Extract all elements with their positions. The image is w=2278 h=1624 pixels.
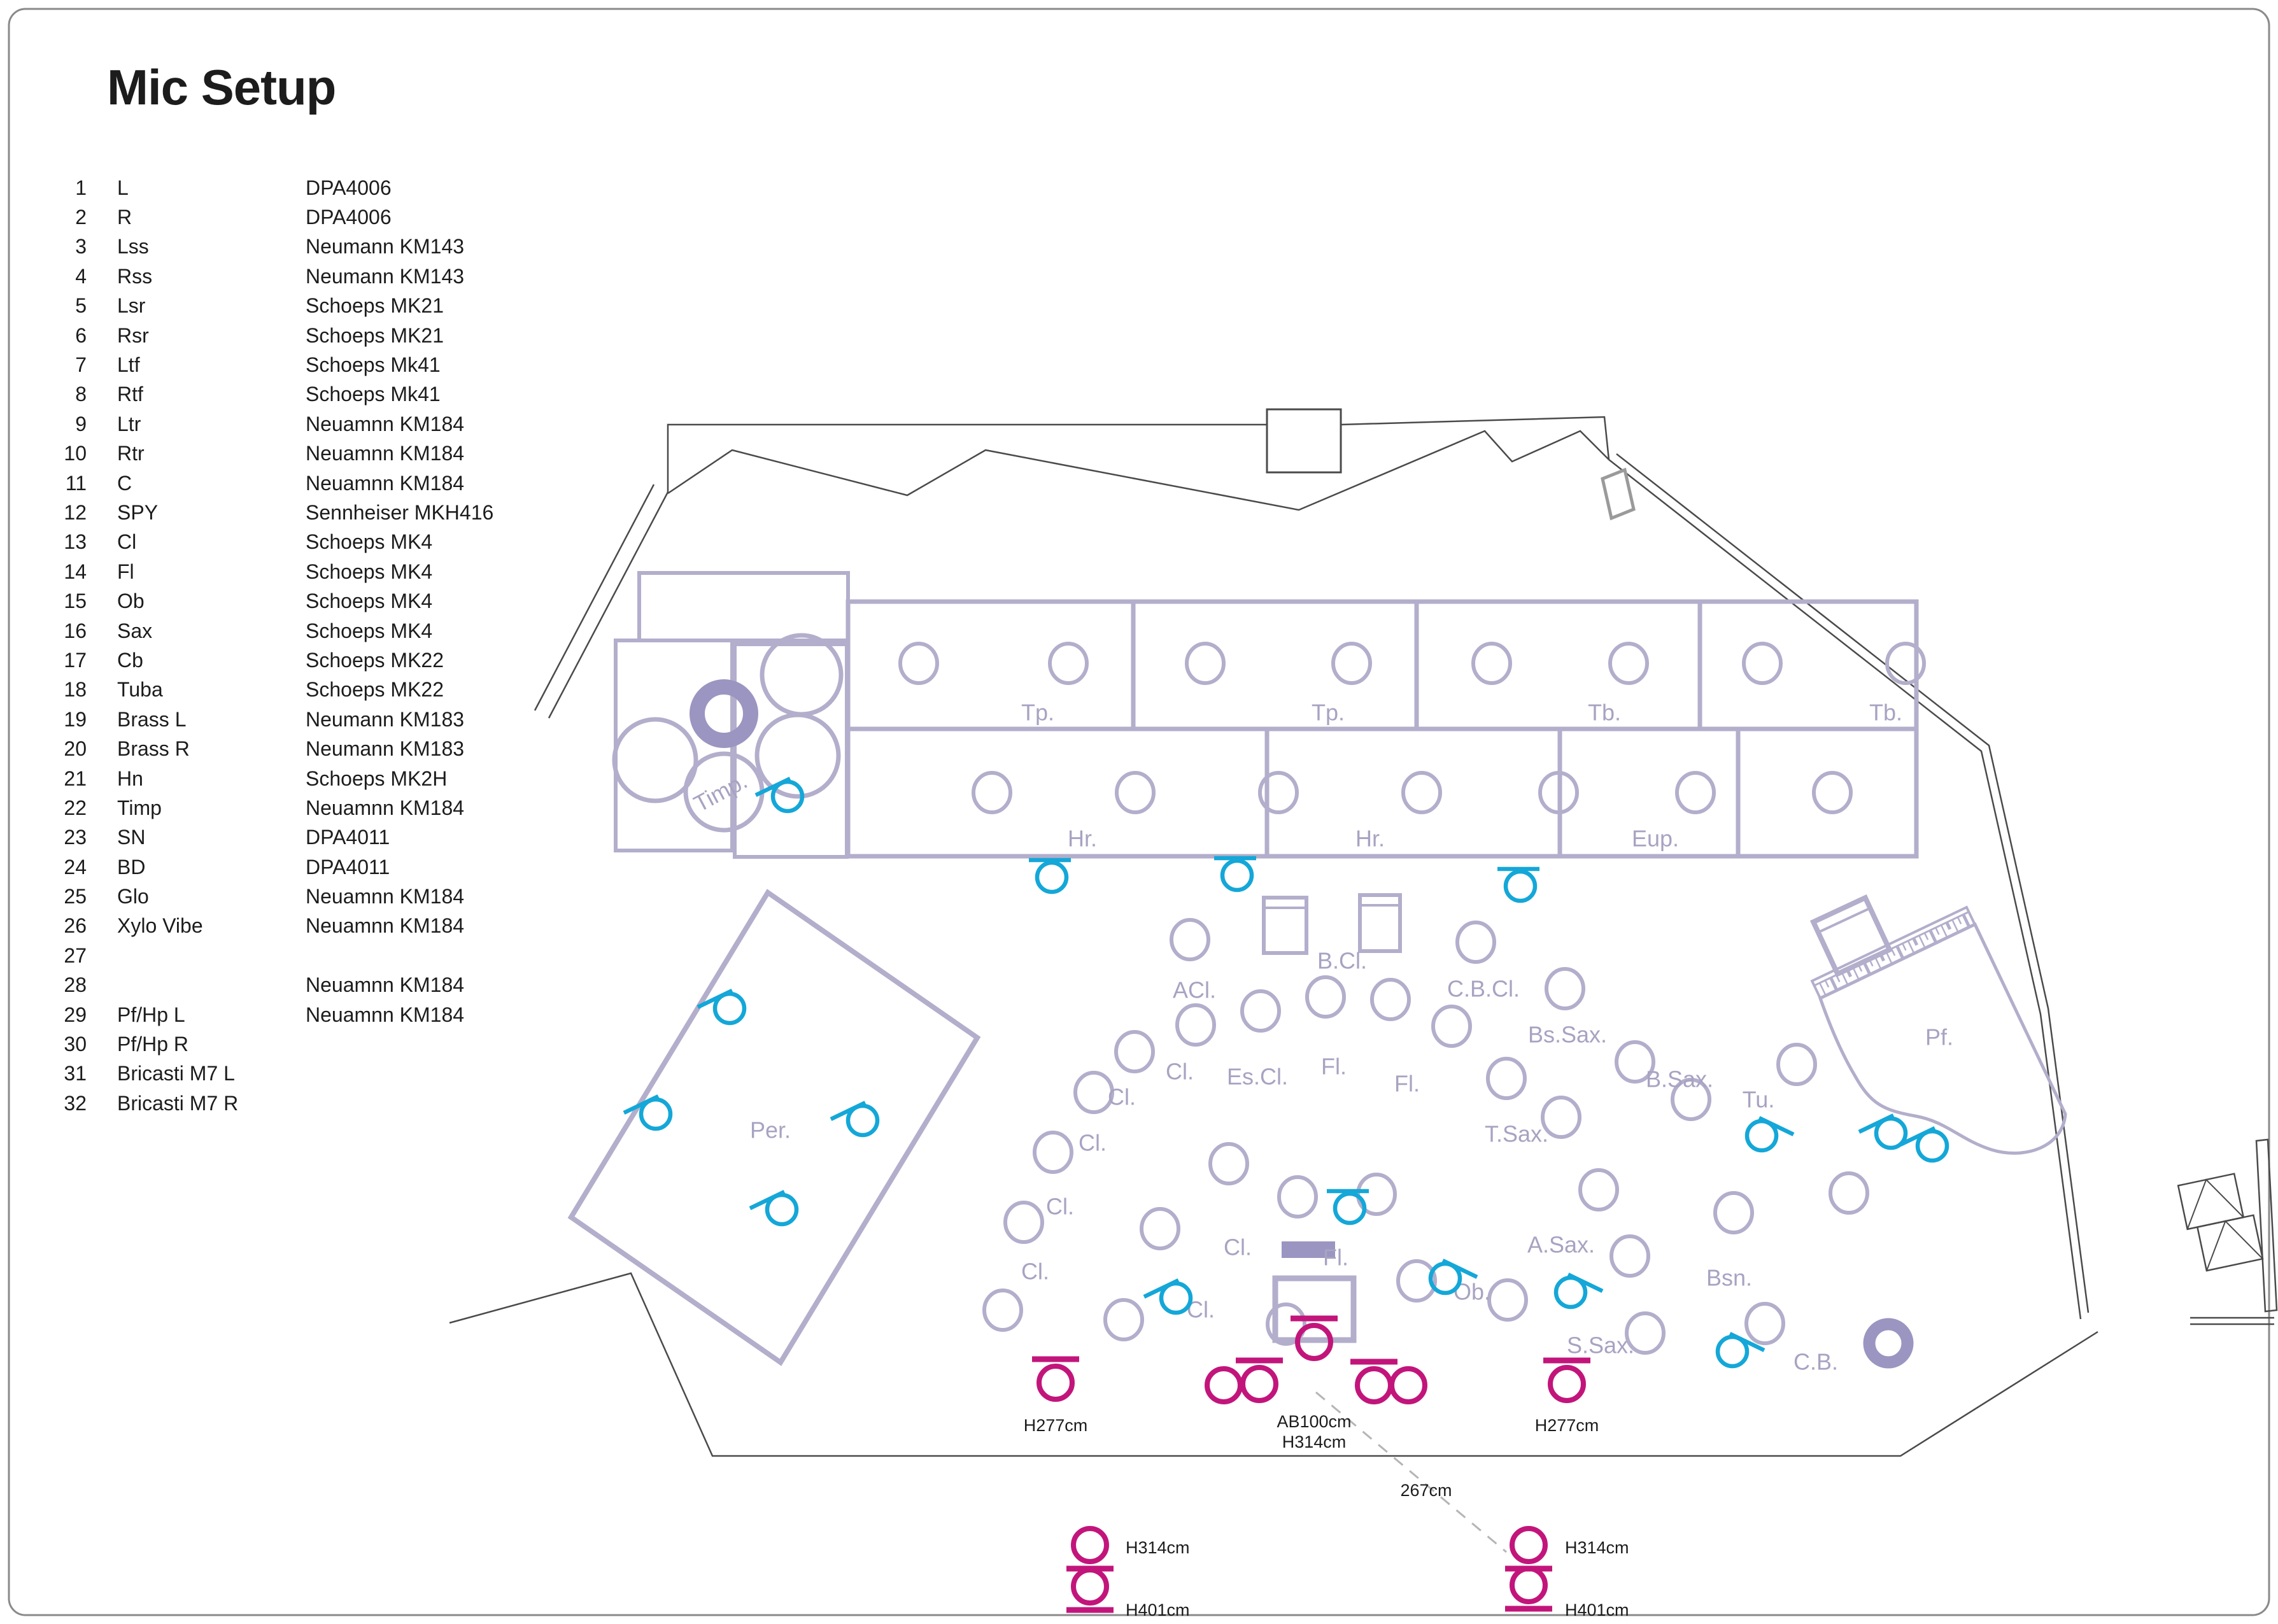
- main-mic-capsule: [1243, 1367, 1276, 1401]
- bcl-stand: [1264, 898, 1306, 953]
- wall-edge-strip: [2256, 1140, 2277, 1311]
- door-booth: [1267, 409, 1341, 472]
- chair: [1814, 773, 1851, 812]
- section-label: Cl.: [1108, 1084, 1136, 1110]
- chair: [1105, 1300, 1142, 1339]
- chair: [973, 773, 1010, 812]
- piano-keyboard: [1812, 907, 1975, 998]
- wall-line: [1617, 454, 2088, 1313]
- main-mic-icon: [1543, 1360, 1590, 1401]
- spot-mic-icon: [831, 1103, 877, 1135]
- main-mic-icon: [1207, 1369, 1240, 1402]
- section-label: Cl.: [1021, 1259, 1049, 1285]
- timpani-drum: [762, 635, 841, 714]
- chair: [1473, 644, 1510, 683]
- timpani-box: [735, 644, 847, 857]
- main-mic-icon: [1505, 1529, 1552, 1569]
- measure-label: H401cm: [1565, 1600, 1629, 1620]
- measure-label: H314cm: [1565, 1538, 1629, 1557]
- chair: [900, 644, 937, 683]
- section-label: Bsn.: [1706, 1265, 1752, 1291]
- chair: [1035, 1133, 1072, 1172]
- section-label: Cl.: [1224, 1234, 1252, 1260]
- measure-label: 267cm: [1400, 1481, 1452, 1500]
- main-mic-capsule: [1073, 1570, 1107, 1603]
- section-label: C.B.: [1793, 1349, 1838, 1375]
- chair: [1050, 644, 1087, 683]
- main-mic-capsule: [1039, 1366, 1072, 1399]
- section-label: Timp.: [690, 767, 752, 817]
- measure-label: AB100cm: [1277, 1412, 1351, 1431]
- swing-door-x: [2197, 1215, 2263, 1271]
- main-mic-capsule: [1512, 1529, 1545, 1562]
- section-label: Bs.Sax.: [1528, 1022, 1607, 1048]
- spot-mic-icon: [1029, 860, 1071, 892]
- swing-door: [2197, 1215, 2263, 1271]
- measure-label: H401cm: [1126, 1600, 1190, 1620]
- main-mic-icon: [1392, 1369, 1425, 1402]
- chair: [1715, 1193, 1752, 1232]
- section-label: Fl.: [1394, 1071, 1420, 1097]
- chair: [1457, 922, 1494, 962]
- chair: [1187, 644, 1224, 683]
- section-label: Hr.: [1355, 826, 1385, 852]
- main-mic-capsule: [1512, 1569, 1545, 1602]
- piano-key: [1963, 914, 1969, 927]
- chair: [1117, 773, 1154, 812]
- section-label: S.Sax.: [1567, 1332, 1634, 1359]
- chair: [1580, 1170, 1617, 1210]
- main-mic-icon: [1236, 1360, 1283, 1401]
- spot-mic-icon: [750, 1192, 796, 1224]
- timpani-box: [639, 573, 848, 640]
- section-label: Tu.: [1743, 1087, 1775, 1113]
- riser-back: [848, 602, 1916, 729]
- chair: [1546, 969, 1583, 1008]
- section-label: Hr.: [1068, 826, 1097, 852]
- chair: [1242, 991, 1279, 1031]
- chair: [1488, 1059, 1525, 1098]
- chair: [1177, 1005, 1214, 1045]
- main-mic-icon: [1505, 1569, 1552, 1609]
- section-label: Es.Cl.: [1227, 1064, 1288, 1090]
- section-label: Pf.: [1925, 1024, 1953, 1050]
- chair: [1005, 1203, 1042, 1242]
- conductor-podium: [1275, 1278, 1354, 1340]
- wall-line: [668, 431, 1609, 510]
- wall-panel: [1602, 470, 1634, 518]
- section-label: Tb.: [1588, 700, 1621, 726]
- section-label: B.Sax.: [1646, 1066, 1713, 1092]
- spot-mic-capsule: [1037, 863, 1066, 892]
- chair: [1610, 644, 1647, 683]
- swing-door: [2178, 1174, 2244, 1229]
- spot-mic-capsule: [1506, 872, 1535, 901]
- chair: [1403, 773, 1440, 812]
- mic-setup-sheet: Mic Setup 1LDPA40062RDPA40063LssNeumann …: [0, 0, 2278, 1624]
- main-mic-icon: [1066, 1529, 1114, 1569]
- section-label: A.Sax.: [1527, 1232, 1595, 1258]
- measure-label: H314cm: [1126, 1538, 1190, 1557]
- piano-key: [1831, 978, 1837, 991]
- spot-mic-icon: [1556, 1274, 1602, 1307]
- piano-key: [1958, 917, 1961, 924]
- section-label: Cl.: [1166, 1059, 1194, 1085]
- chair: [1142, 1209, 1178, 1248]
- piano-key: [1930, 930, 1936, 943]
- section-label: Tb.: [1869, 700, 1902, 726]
- bcl-stand: [1360, 895, 1400, 951]
- piano-key: [1947, 922, 1950, 929]
- chair: [1830, 1173, 1867, 1213]
- section-label: Eup.: [1632, 826, 1679, 852]
- chair: [1116, 1032, 1153, 1071]
- spot-mic-capsule: [1335, 1194, 1364, 1223]
- spot-mic-icon: [1747, 1118, 1793, 1150]
- wall-line: [1341, 417, 1609, 460]
- chair: [1744, 644, 1781, 683]
- spot-mic-icon: [1144, 1280, 1191, 1313]
- chair: [1489, 1280, 1526, 1320]
- section-label: Tp.: [1312, 700, 1345, 726]
- main-mic-capsule: [1550, 1367, 1583, 1401]
- piano-key: [1908, 941, 1914, 954]
- main-mic-capsule: [1207, 1369, 1240, 1402]
- chair: [1307, 977, 1344, 1017]
- wall-line: [535, 484, 654, 710]
- swing-door-x: [2178, 1174, 2244, 1229]
- piano-key: [1935, 928, 1939, 935]
- main-mic-capsule: [1392, 1369, 1425, 1402]
- bass-drum: [697, 687, 751, 740]
- piano-stool-line: [1818, 908, 1871, 933]
- contrabass-stool: [1869, 1324, 1907, 1362]
- spot-mic-icon: [624, 1096, 670, 1129]
- chair: [1333, 644, 1370, 683]
- chair: [1433, 1006, 1470, 1046]
- piano-key: [1952, 920, 1958, 933]
- spot-mic-icon: [1859, 1115, 1906, 1148]
- section-label: B.Cl.: [1317, 948, 1367, 974]
- spot-mic-icon: [1327, 1191, 1369, 1223]
- section-label: Tp.: [1021, 700, 1054, 726]
- section-label: ACl.: [1173, 977, 1216, 1003]
- piano-key: [1820, 983, 1825, 996]
- chair: [1372, 980, 1409, 1019]
- chair: [1279, 1177, 1316, 1217]
- swing-doors: [2178, 1171, 2263, 1273]
- section-label: Cl.: [1046, 1194, 1074, 1220]
- section-label: Fl.: [1321, 1054, 1347, 1080]
- section-label: T.Sax.: [1485, 1121, 1548, 1147]
- chair: [1778, 1045, 1815, 1084]
- piano-key: [1941, 925, 1947, 938]
- section-label: Cl.: [1079, 1130, 1107, 1156]
- measure-label: H277cm: [1024, 1416, 1088, 1435]
- main-mic-capsule: [1357, 1369, 1390, 1402]
- chair: [1677, 773, 1714, 812]
- chair: [1611, 1236, 1648, 1276]
- spot-mic-capsule: [1222, 861, 1252, 890]
- piano-key: [1925, 933, 1928, 940]
- chair: [1075, 1073, 1112, 1112]
- piano-key: [1897, 946, 1903, 959]
- main-mic-icon: [1032, 1359, 1079, 1399]
- wall-line: [1609, 460, 2081, 1319]
- piano-key: [1902, 943, 1906, 950]
- stage-diagram: Tp.Tp.Tb.Tb.Hr.Hr.Eup.Timp.Per.ACl.B.Cl.…: [0, 0, 2278, 1624]
- section-label: Per.: [750, 1117, 791, 1143]
- chair: [1210, 1144, 1247, 1183]
- section-label: Fl.: [1323, 1245, 1348, 1271]
- piano-key: [1825, 980, 1829, 987]
- section-label: C.B.Cl.: [1447, 976, 1520, 1002]
- spot-mic-icon: [1214, 858, 1256, 890]
- measure-label: H277cm: [1535, 1416, 1599, 1435]
- chair: [984, 1290, 1021, 1330]
- spot-mic-icon: [1718, 1334, 1764, 1366]
- main-mic-capsule: [1073, 1529, 1107, 1562]
- piano-key: [1919, 936, 1925, 949]
- spot-mic-icon: [1497, 869, 1539, 901]
- main-mic-icon: [1066, 1570, 1114, 1610]
- measure-label: H314cm: [1282, 1432, 1347, 1451]
- chair: [1171, 920, 1208, 959]
- chair: [1746, 1304, 1783, 1343]
- piano-key: [1914, 938, 1917, 945]
